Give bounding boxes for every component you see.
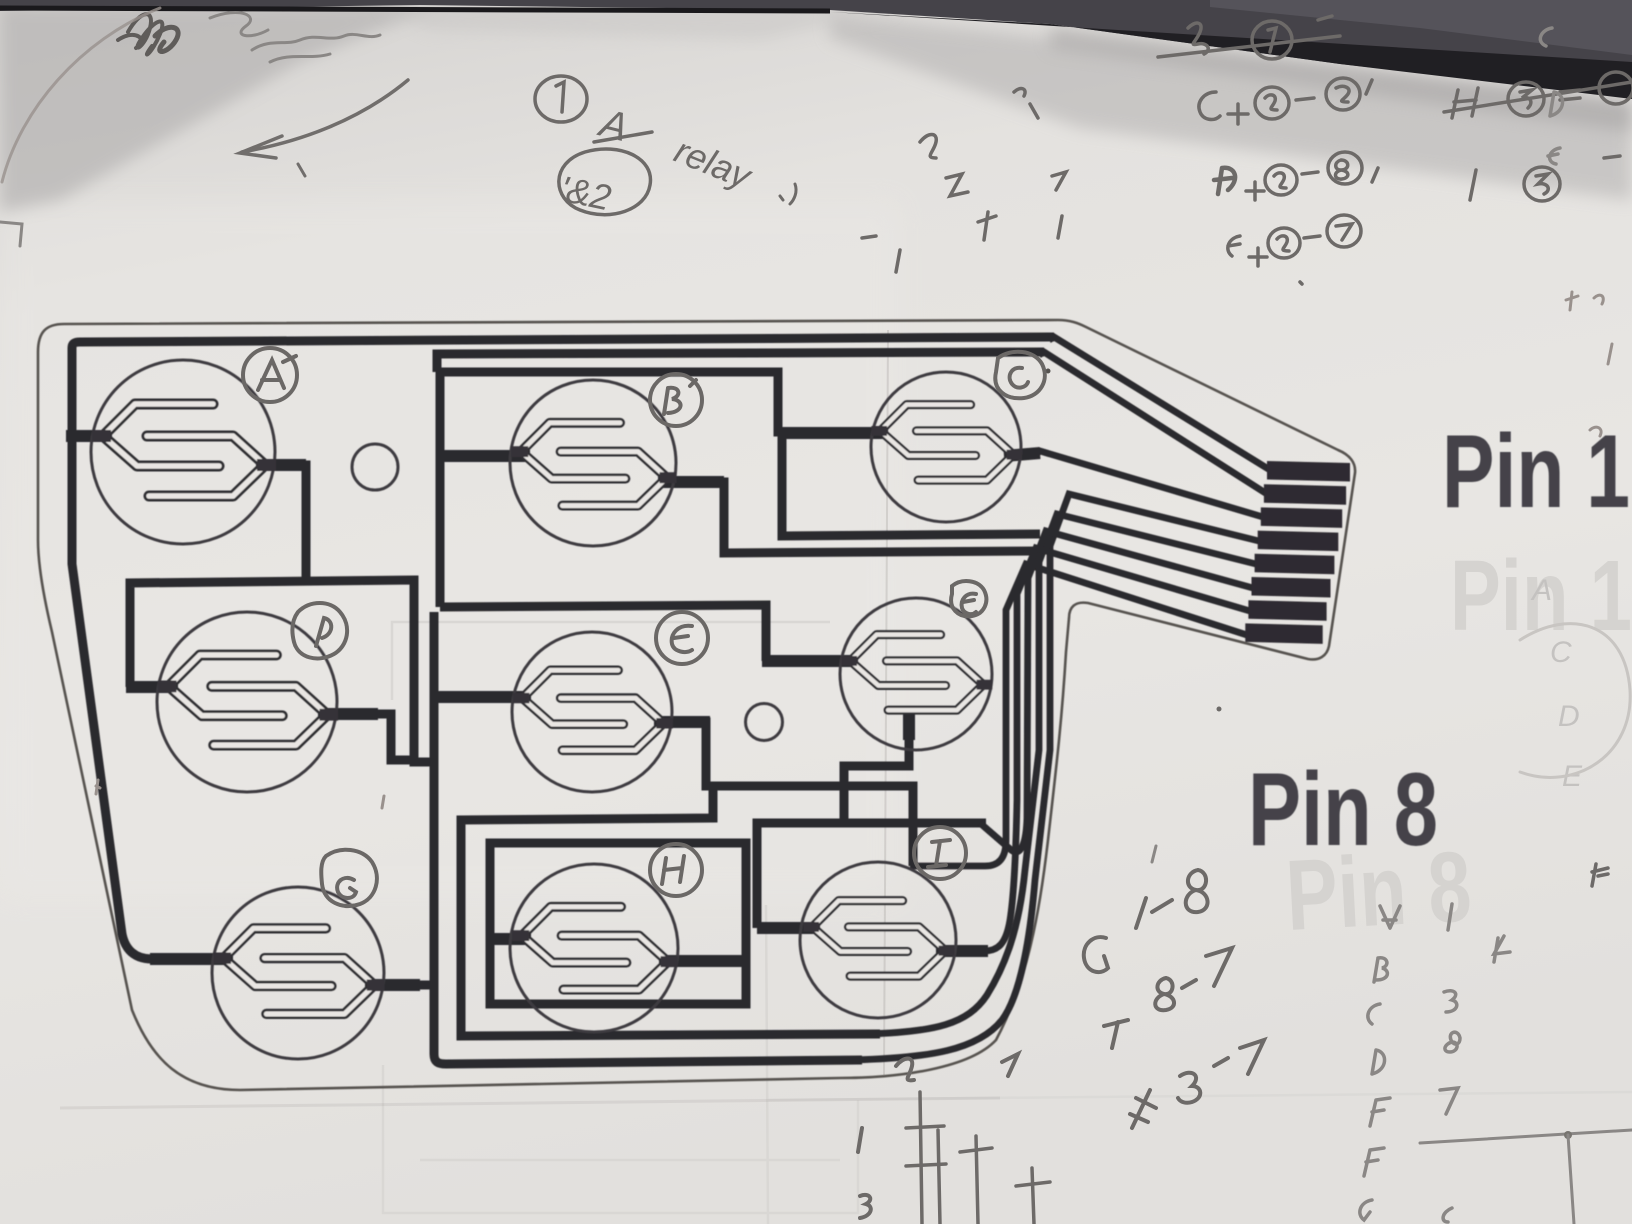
svg-text:D: D (1558, 700, 1580, 733)
svg-text:C: C (1550, 636, 1572, 669)
svg-text:Pin 8: Pin 8 (1248, 752, 1438, 868)
svg-text:A: A (1530, 574, 1552, 607)
